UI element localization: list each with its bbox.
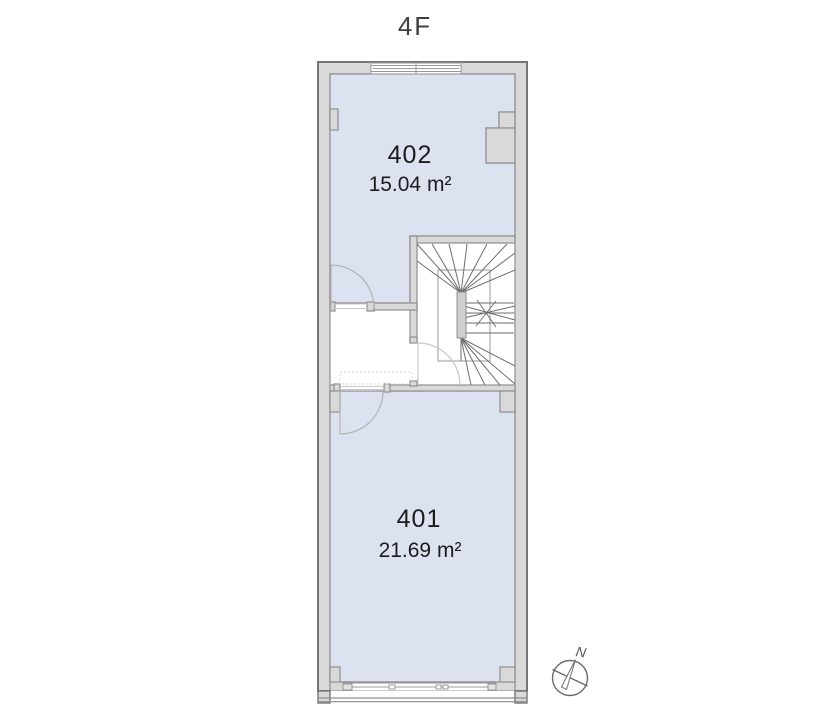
pilaster-401-bottomright — [500, 667, 515, 683]
room-402-area: 15.04 m² — [369, 173, 452, 196]
floor-plan-canvas: 4F — [0, 0, 816, 720]
north-compass-icon: N — [553, 643, 589, 695]
hall-402-wall — [371, 303, 417, 310]
pilaster-401-topleft — [330, 391, 340, 412]
pilaster-402-left — [330, 109, 338, 130]
stair-door-jamb-top — [410, 337, 417, 343]
balcony — [318, 691, 527, 703]
pilaster-401-topright — [500, 391, 515, 412]
pilaster-401-bottomleft — [330, 667, 340, 683]
door-401-jamb-right — [384, 384, 390, 392]
room-401-area: 21.69 m² — [379, 539, 462, 562]
stair-spine-wall — [457, 292, 466, 338]
floor-plan-page: 4F — [0, 0, 816, 720]
hall-401-wall — [385, 385, 515, 391]
top-window — [371, 63, 461, 74]
floor-title: 4F — [398, 11, 432, 41]
stair-top-wall — [410, 236, 515, 243]
room-402-number: 402 — [388, 141, 433, 169]
north-label: N — [575, 643, 589, 661]
pilaster-402-right-b — [486, 128, 515, 163]
room-401-floor — [330, 391, 515, 682]
door-402-jamb-right — [367, 302, 374, 311]
stair-left-wall — [410, 236, 417, 342]
room-401-number: 401 — [397, 505, 442, 533]
pilaster-402-right-a — [499, 112, 515, 128]
bottom-window — [343, 683, 496, 691]
